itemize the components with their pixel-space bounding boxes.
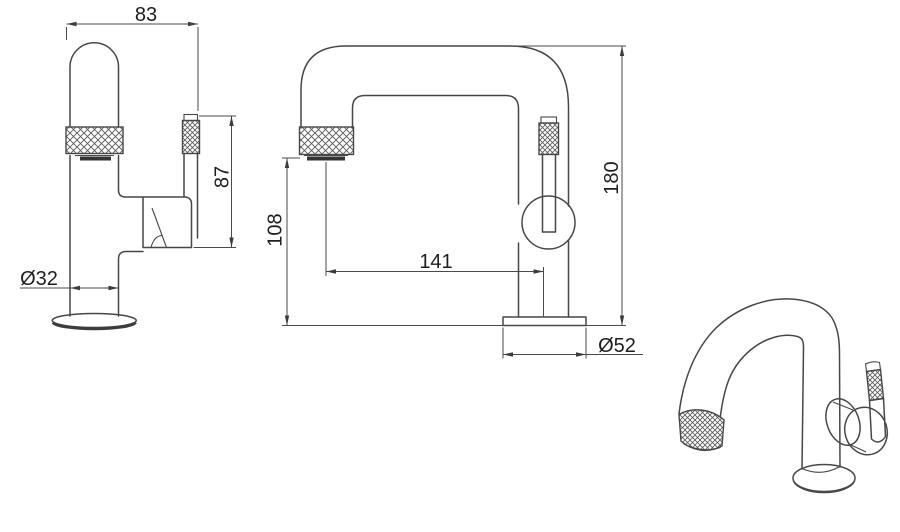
dimension-spout-reach: 141 [326,162,544,317]
housing-bottom-shoulder [119,252,144,317]
aerator-outlet-bar-side [80,157,111,161]
lever-cap-side [184,115,198,121]
dim-label-141: 141 [419,251,452,273]
front-view: 108 141 180 Ø52 [265,46,644,359]
aerator-outlet-bar-front [307,157,345,161]
technical-drawing-canvas: 83 87 Ø32 [0,0,900,532]
housing-top-shoulder [119,190,144,197]
lever-rod-3d [870,399,886,442]
lever-root-diagonal [152,208,167,248]
lever-cap-front [541,117,557,123]
spout-dome-outline [70,43,119,127]
base-flange-rim-side [53,323,136,329]
base-plate-front [503,317,586,326]
dimension-base-diameter: Ø52 [503,328,643,359]
dim-label-108: 108 [265,213,287,246]
dim-label-87: 87 [212,166,234,188]
lever-stick-front [543,155,556,233]
spout-outer-profile [301,46,569,206]
aerator-knurl-ring-side [66,127,123,154]
aerator-knurl-ring-front [300,127,354,155]
dim-label-d52: Ø52 [598,335,636,357]
technical-drawing-page: 83 87 Ø32 [0,0,900,532]
dimension-outlet-height: 108 [265,158,301,326]
dim-label-83: 83 [135,4,157,26]
lever-knurl-front [539,123,559,155]
spout-inner-profile [353,96,519,205]
escutcheon-circle-front [522,196,575,249]
lever-knurl-side [183,121,200,154]
dimension-spout-width: 83 [67,4,199,111]
perspective-view [679,299,893,493]
dim-label-180: 180 [601,161,623,194]
dim-label-d32: Ø32 [20,268,58,290]
handle-housing-block [143,197,192,248]
lever-root-arc [151,236,162,248]
side-view: 83 87 Ø32 [20,4,236,329]
lever-knurl-3d [867,370,884,401]
